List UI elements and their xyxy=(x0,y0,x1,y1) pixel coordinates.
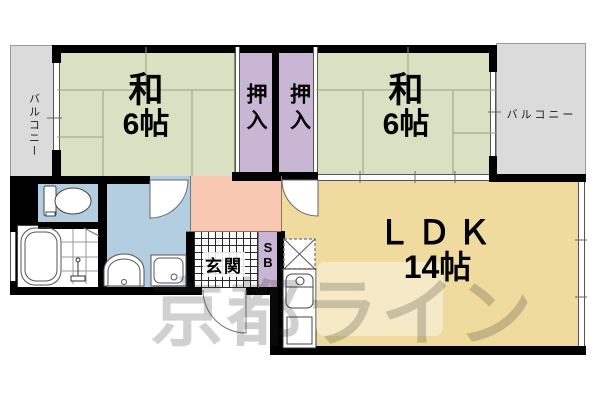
bathtub-icon xyxy=(21,228,99,285)
label-ldk-size: 14帖 xyxy=(300,251,575,285)
label-shoebox: S B xyxy=(258,240,278,270)
label-closet-left: 押入 xyxy=(235,45,275,173)
label-washitsu-right-size: 6帖 xyxy=(316,109,496,141)
label-closet-right: 押入 xyxy=(279,45,318,173)
door-arc-entrance xyxy=(203,290,246,333)
label-shoebox-b: B xyxy=(258,255,278,270)
label-washitsu-left-size: 6帖 xyxy=(57,109,235,141)
label-washitsu-right: 和 6帖 xyxy=(316,72,496,141)
door-arc-washroom xyxy=(150,180,188,218)
label-washitsu-left-name: 和 xyxy=(57,72,235,109)
label-balcony-left: バルコニー xyxy=(10,70,57,180)
label-shoebox-s: S xyxy=(258,240,278,255)
label-ldk: ＬＤＫ 14帖 xyxy=(300,216,575,285)
label-washitsu-left: 和 6帖 xyxy=(57,72,235,141)
label-balcony-right: バルコニー xyxy=(497,106,586,122)
label-ldk-name: ＬＤＫ xyxy=(300,216,575,251)
washing-machine-icon xyxy=(151,255,186,286)
label-washitsu-right-name: 和 xyxy=(316,72,496,109)
toilet-icon xyxy=(44,186,91,216)
stove-icon xyxy=(287,317,312,344)
label-genkan: 玄関 xyxy=(203,252,245,277)
door-arc-ldk xyxy=(282,180,318,216)
washbasin-icon xyxy=(104,254,144,286)
floorplan: バルコニー 和 6帖 押入 押入 和 6帖 バルコニー 玄関 S B ＬＤＫ 1… xyxy=(0,0,600,400)
